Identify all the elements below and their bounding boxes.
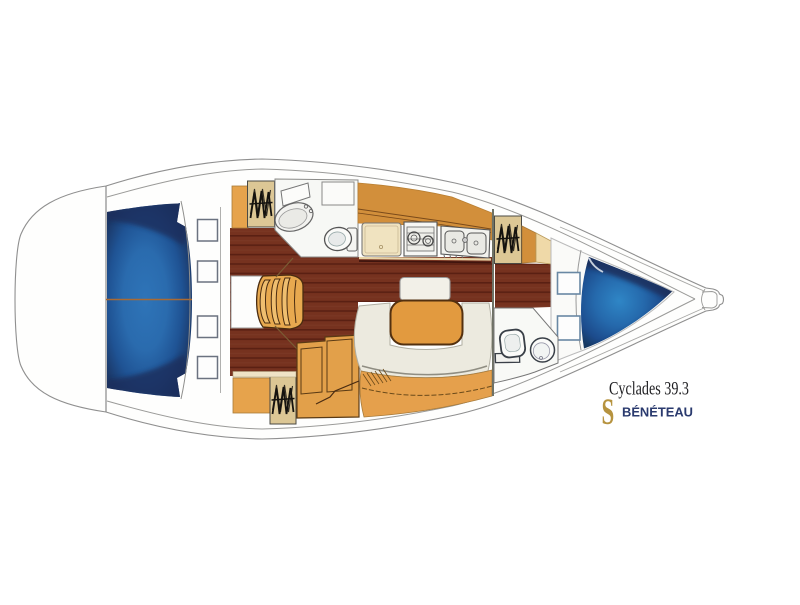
svg-text:BÉNÉTEAU: BÉNÉTEAU	[622, 405, 693, 420]
svg-text:Cyclades 39.3: Cyclades 39.3	[609, 379, 689, 400]
svg-text:S: S	[602, 392, 615, 433]
